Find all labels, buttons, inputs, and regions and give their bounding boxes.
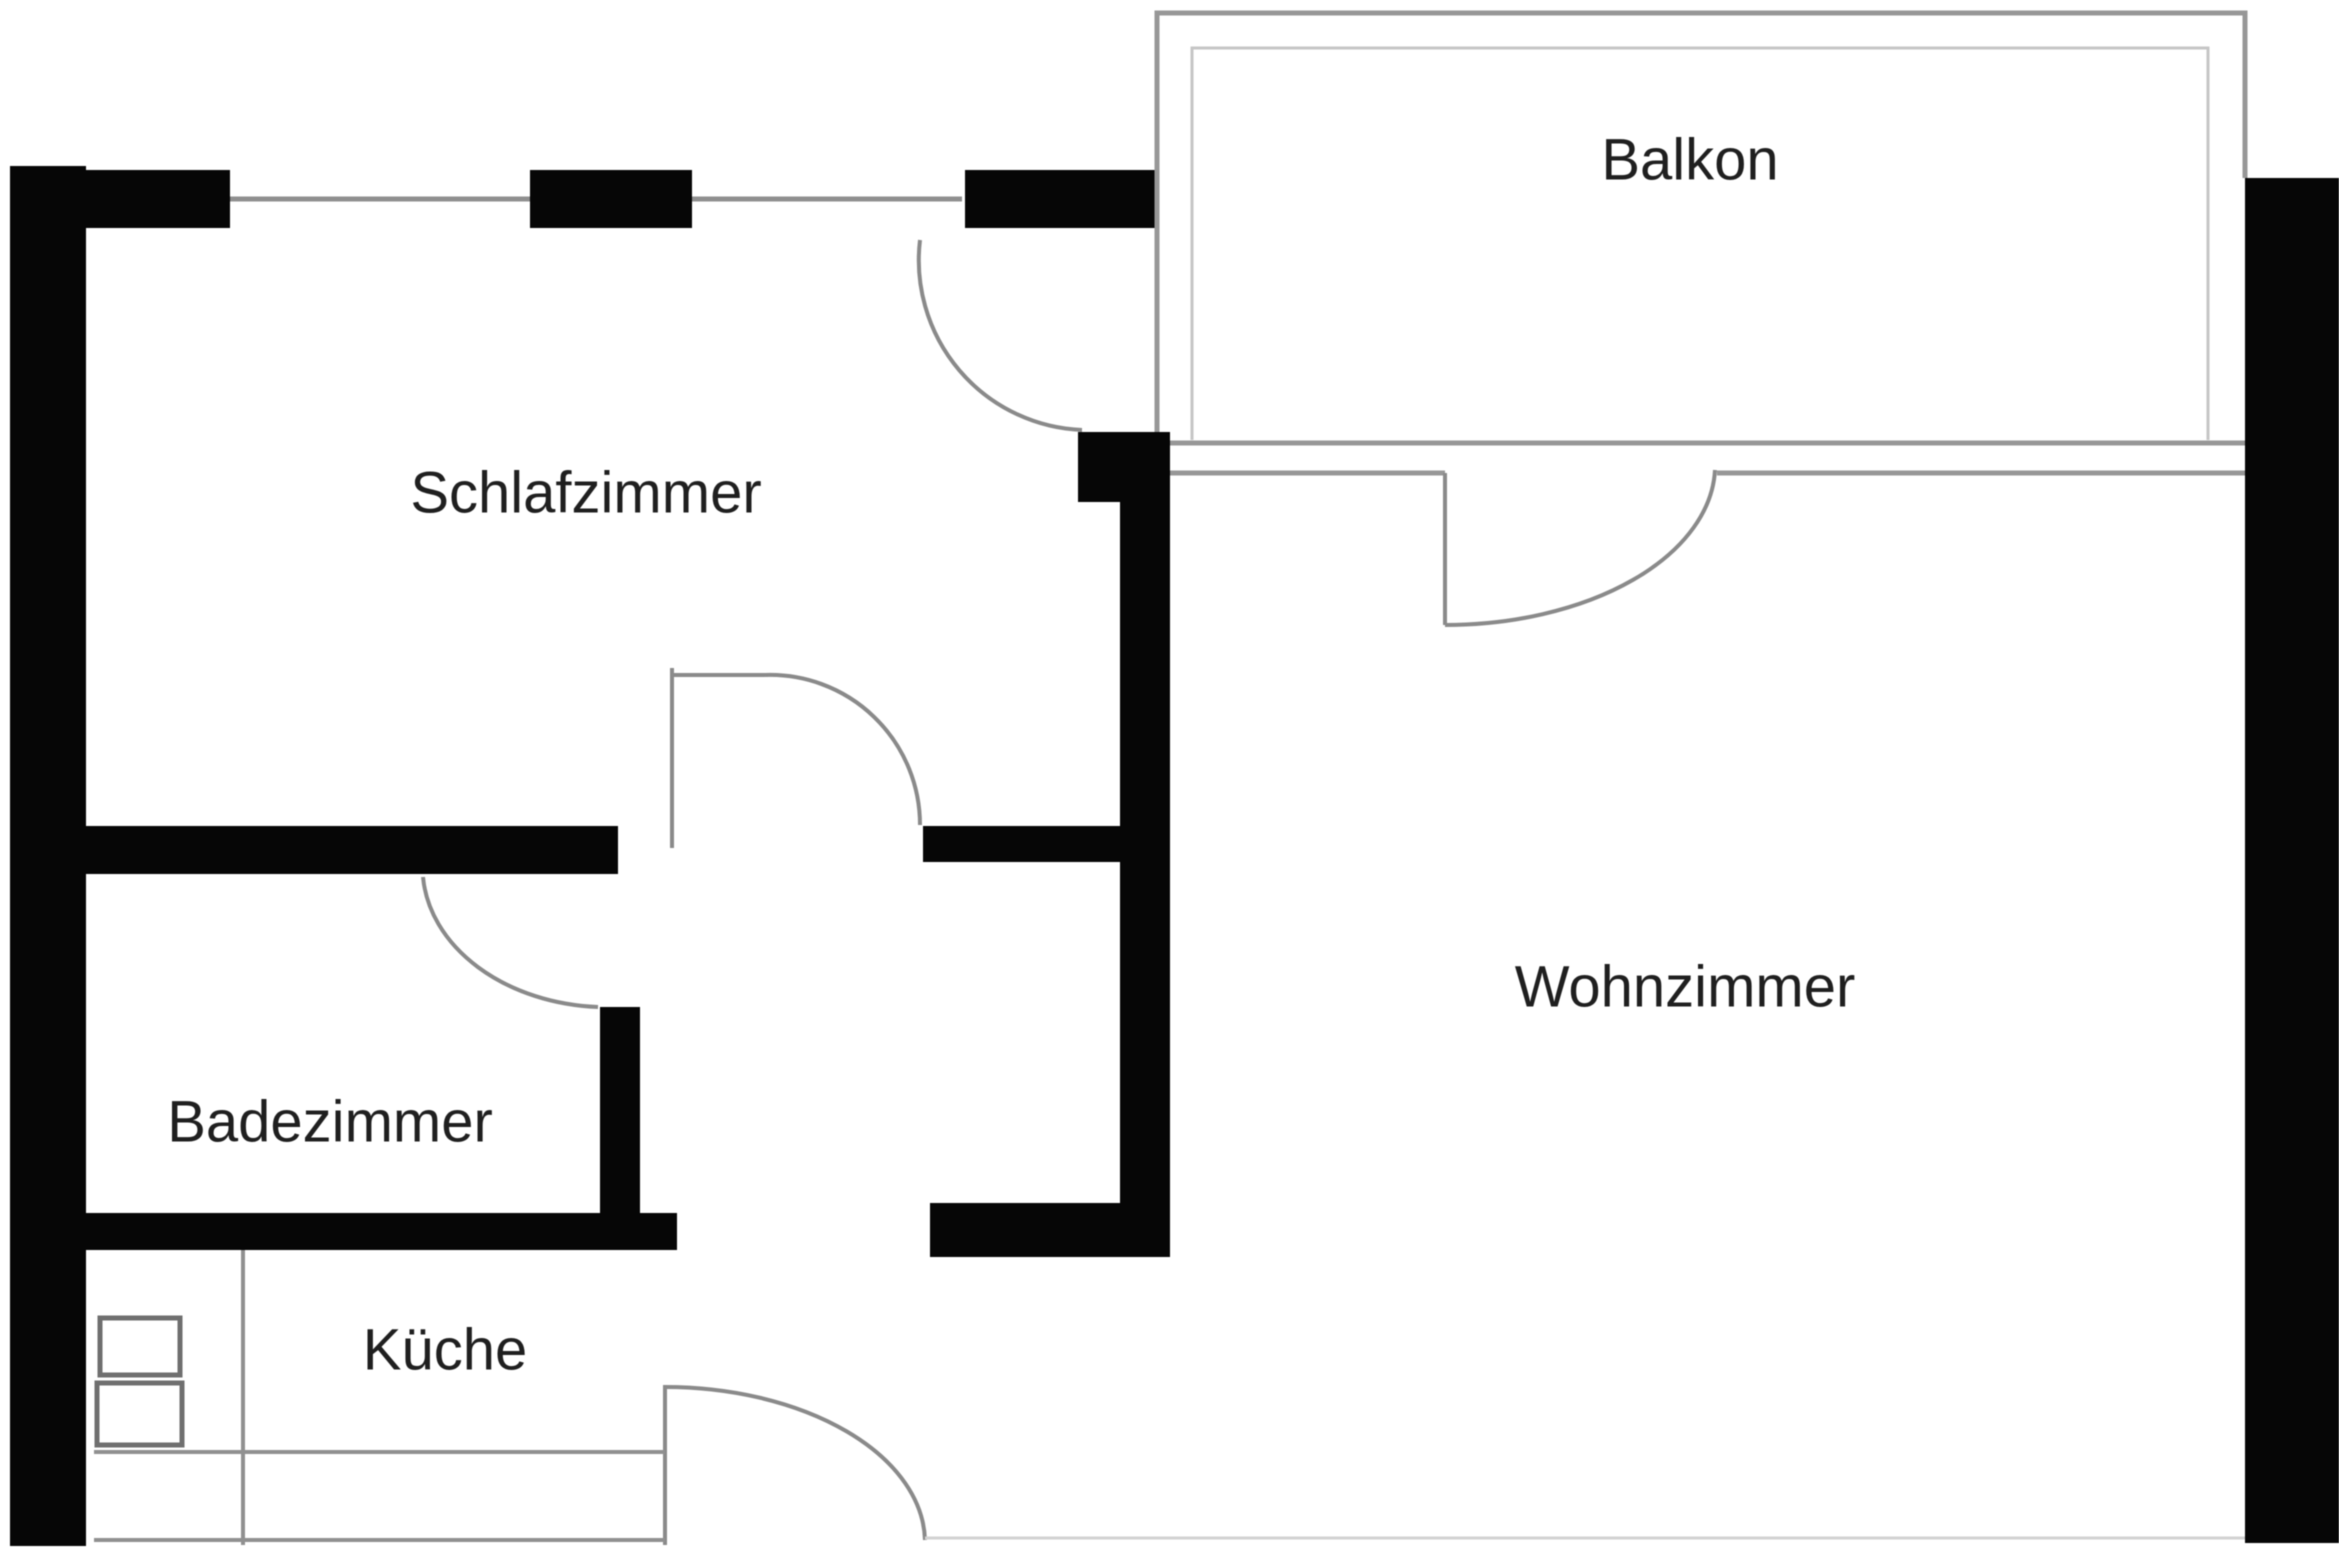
kueche-door-arc bbox=[665, 1387, 925, 1540]
balcony-inner-railing bbox=[1192, 48, 2208, 440]
kitchen-fixture-sink bbox=[100, 1318, 180, 1375]
floor-plan-drawing bbox=[0, 0, 2339, 1559]
walls bbox=[10, 166, 2339, 1546]
balcony bbox=[1157, 13, 2245, 473]
top-wall-segment-b bbox=[530, 170, 692, 228]
right-exterior-wall bbox=[2245, 178, 2339, 1543]
badezimmer-bottom-wall bbox=[86, 1213, 677, 1250]
room-label-balkon: Balkon bbox=[1601, 127, 1778, 194]
top-wall-segment-a bbox=[10, 170, 230, 228]
hallway-door-arc bbox=[765, 675, 920, 825]
doors bbox=[423, 240, 1715, 1545]
badezimmer-door-arc bbox=[423, 877, 598, 1007]
balcony-door-arc bbox=[1445, 470, 1715, 625]
balcony-inner bbox=[1192, 48, 2208, 440]
left-exterior-wall bbox=[10, 166, 86, 1546]
balcony-outer-railing bbox=[1157, 13, 2245, 432]
room-label-schlafzimmer: Schlafzimmer bbox=[410, 460, 761, 527]
kitchen-fixtures bbox=[97, 1318, 182, 1445]
room-label-wohnzimmer: Wohnzimmer bbox=[1515, 954, 1856, 1021]
schlafzimmer-door-arc bbox=[919, 240, 1082, 430]
badezimmer-right-wall bbox=[600, 1007, 640, 1213]
room-label-kueche: Küche bbox=[363, 1317, 527, 1384]
top-wall-segment-c bbox=[965, 170, 1157, 228]
room-label-badezimmer: Badezimmer bbox=[167, 1089, 493, 1156]
schlafzimmer-bottom-wall bbox=[86, 826, 618, 874]
floor-plan: Schlafzimmer Balkon Wohnzimmer Badezimme… bbox=[0, 0, 2339, 1559]
hallway-top-wall bbox=[923, 826, 1170, 862]
corridor-bottom-wall bbox=[930, 1203, 1170, 1257]
kitchen-fixture-stove bbox=[97, 1383, 182, 1445]
